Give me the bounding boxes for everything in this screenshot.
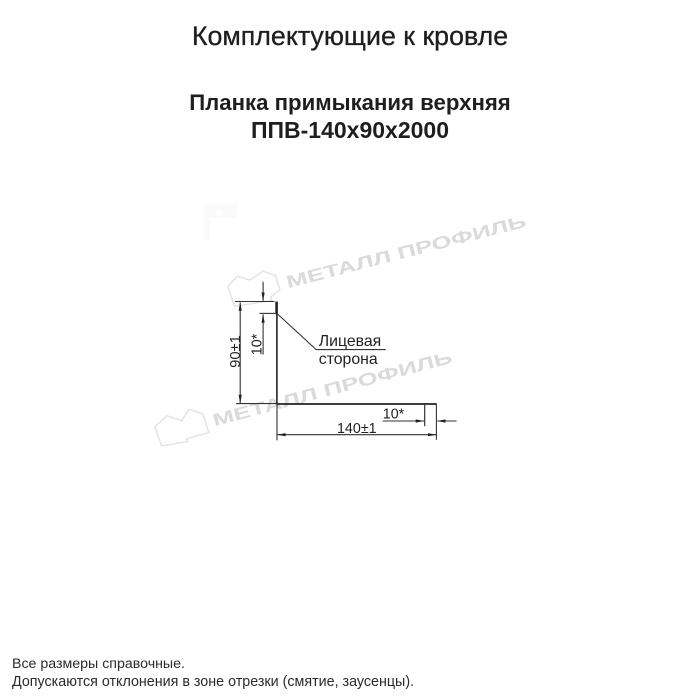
svg-text:МЕТАЛЛ ПРОФИЛЬ: МЕТАЛЛ ПРОФИЛЬ (284, 211, 528, 292)
svg-text:90±1: 90±1 (228, 335, 244, 368)
svg-text:140±1: 140±1 (337, 421, 377, 437)
svg-text:Лицевая: Лицевая (319, 333, 381, 350)
svg-text:сторона: сторона (319, 351, 378, 368)
svg-text:10*: 10* (249, 333, 265, 355)
svg-text:10*: 10* (383, 406, 405, 422)
